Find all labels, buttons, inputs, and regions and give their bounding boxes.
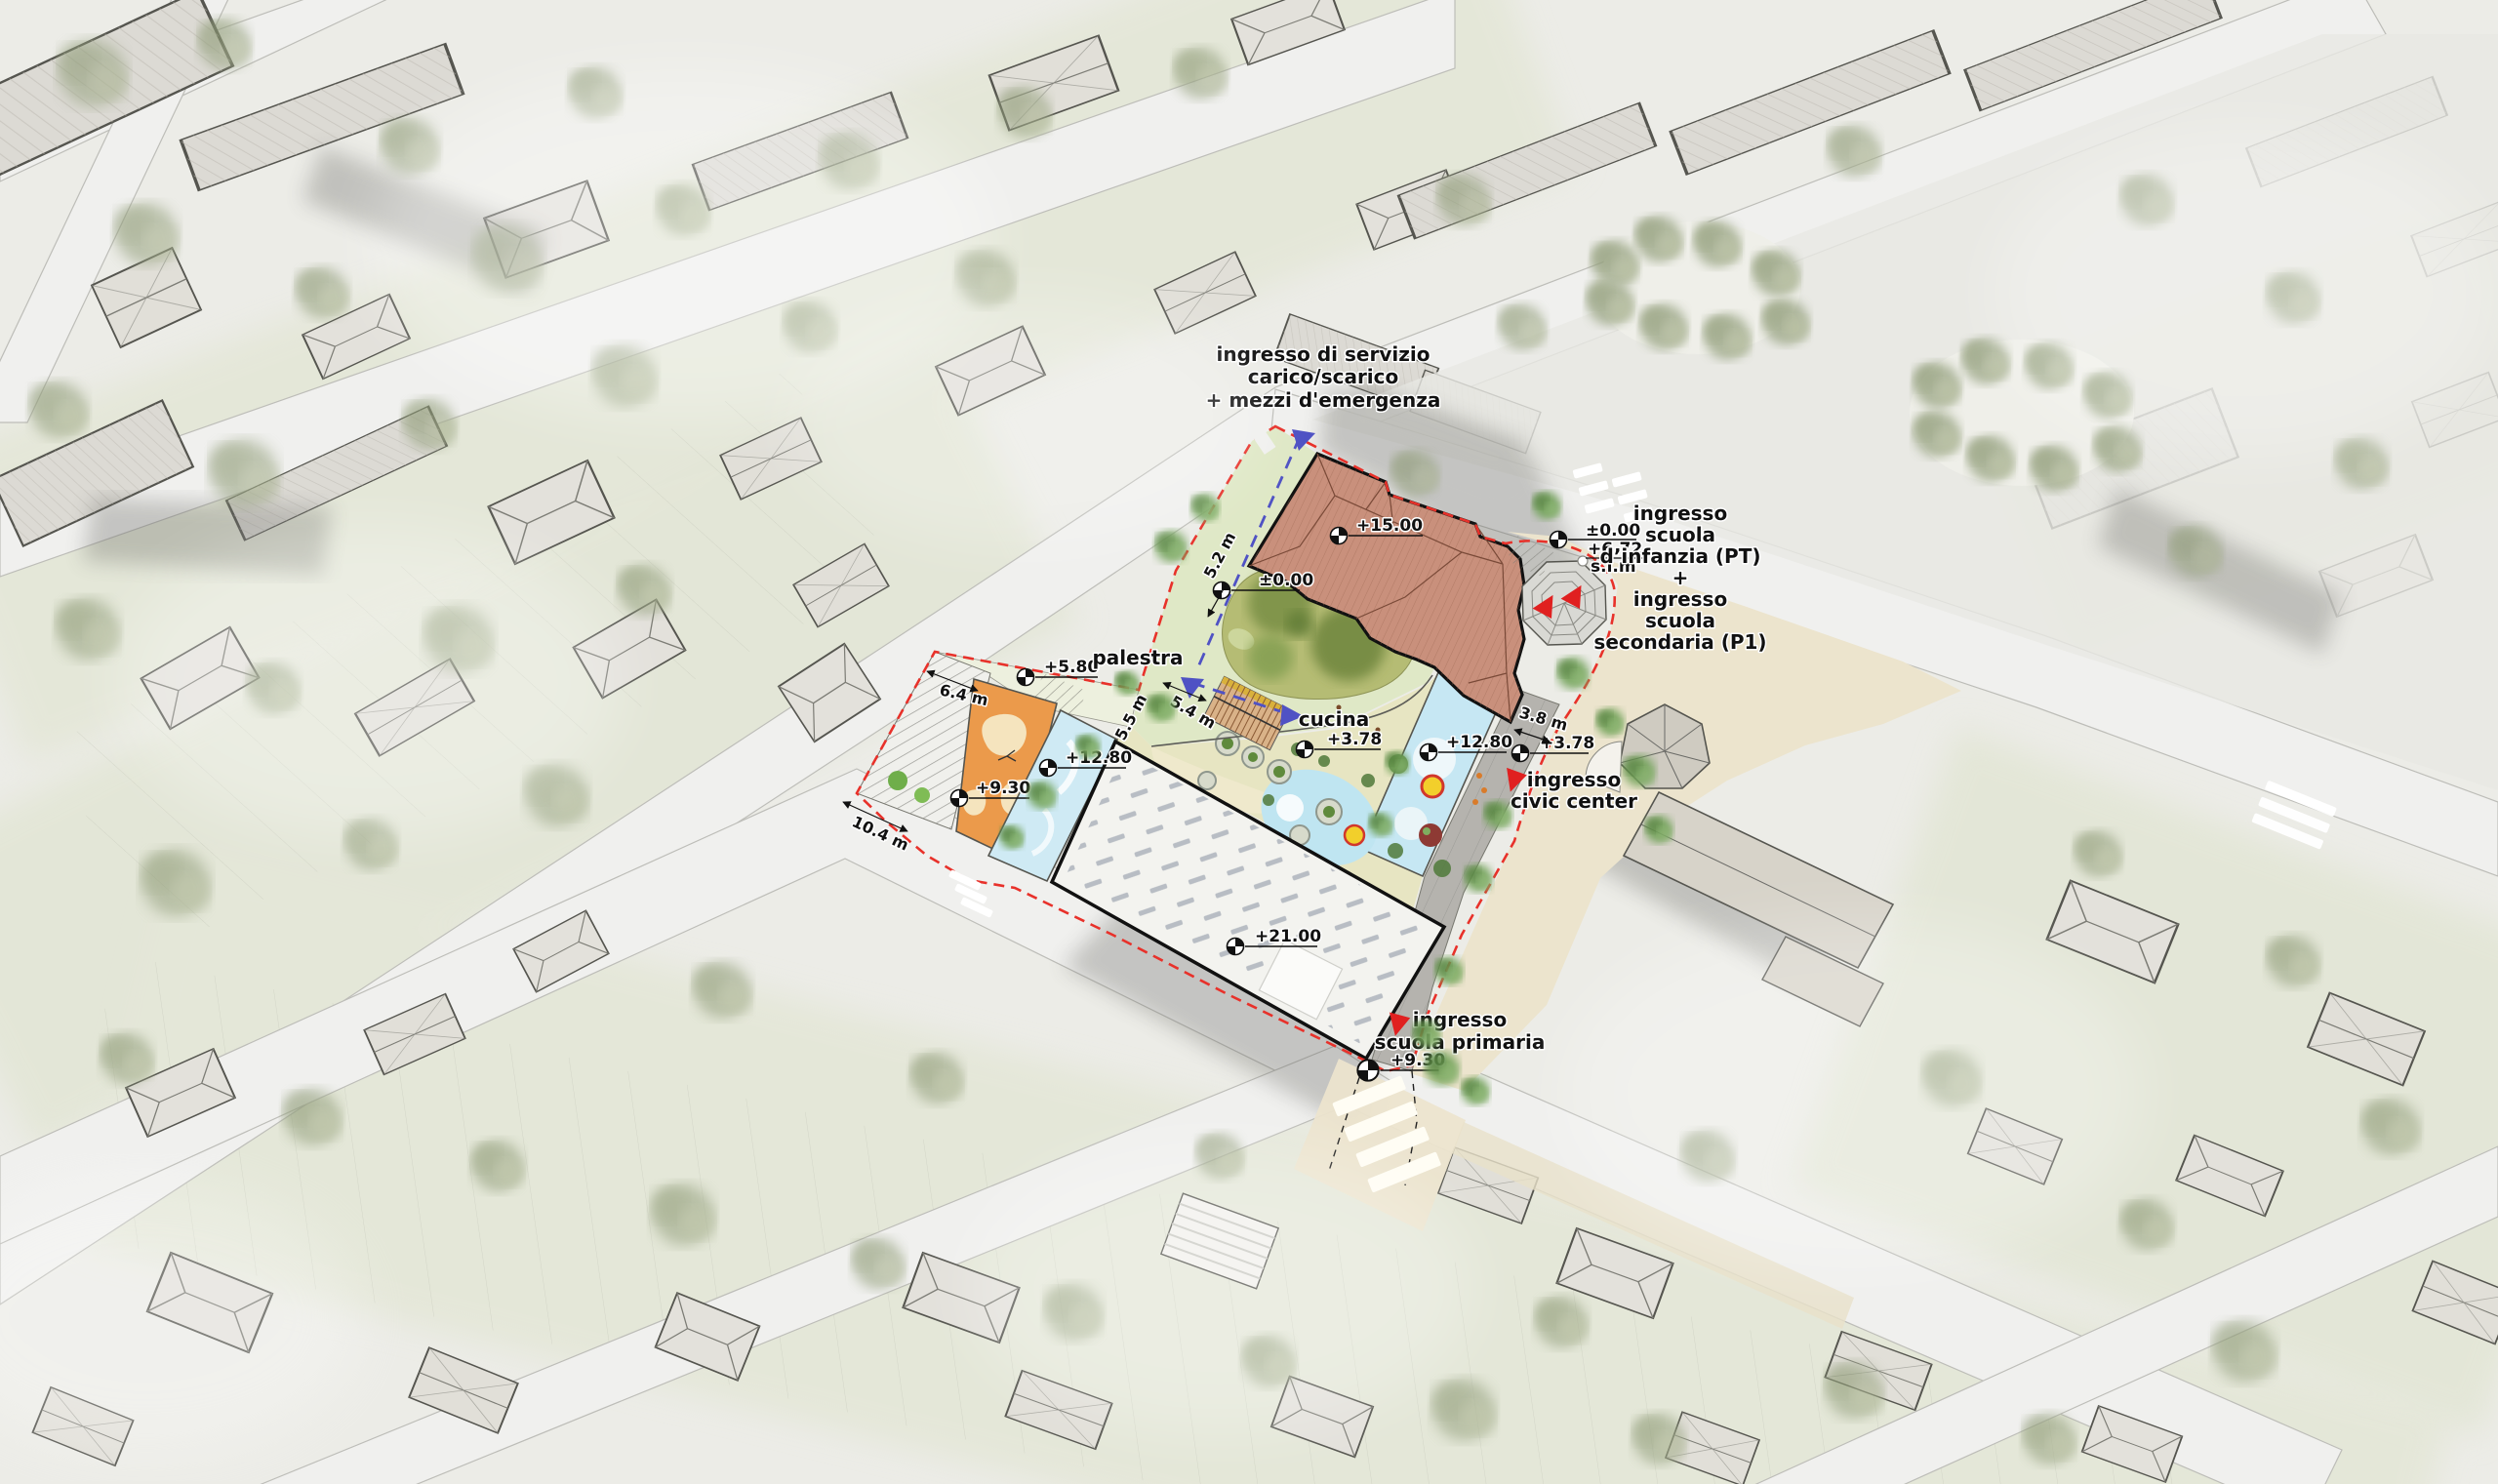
label-palestra: palestra [1092, 646, 1183, 669]
play-toy-detail [1423, 827, 1430, 835]
stair-planter [914, 787, 930, 803]
elev-civic-path: +3.78 [1540, 734, 1594, 753]
elev-roof-primary: +21.00 [1255, 927, 1321, 946]
label-service-1: ingresso di servizio [1217, 342, 1430, 366]
elev-pool-east: +12.80 [1446, 733, 1512, 752]
site-plan: ±0.00 +15.00 ±0.00 +6.72 s.l.m +3.78 +12… [0, 0, 2498, 1484]
play-toy-red [1419, 823, 1442, 847]
label-schools-2: scuola [1645, 523, 1715, 546]
pond-toy [1345, 825, 1364, 845]
pond-island [1276, 794, 1304, 822]
label-schools-4: + [1672, 566, 1689, 589]
stair-planter [888, 771, 907, 790]
label-schools-1: ingresso [1633, 501, 1727, 525]
elev-pool-west: +12.80 [1066, 748, 1132, 768]
label-primary-2: scuola primaria [1375, 1030, 1546, 1054]
elev-play-west: +9.30 [976, 779, 1030, 798]
elev-roof-main: +15.00 [1356, 516, 1423, 536]
label-schools-6: scuola [1645, 609, 1715, 632]
site-plan-canvas: ±0.00 +15.00 ±0.00 +6.72 s.l.m +3.78 +12… [0, 0, 2498, 1484]
elev-courtyard-south: +3.78 [1327, 730, 1382, 749]
label-schools-5: ingresso [1633, 587, 1727, 611]
label-schools-3: d’infanzia (PT) [1600, 544, 1761, 568]
elev-gym: +5.80 [1044, 658, 1099, 677]
label-service-2: carico/scarico [1248, 365, 1399, 388]
label-cucina: cucina [1299, 707, 1370, 731]
label-civic-1: ingresso [1527, 768, 1621, 791]
label-schools-7: secondaria (P1) [1593, 630, 1766, 654]
elev-courtyard-north: ±0.00 [1259, 571, 1313, 590]
play-toy-yellow [1422, 776, 1443, 797]
label-civic-2: civic center [1511, 789, 1637, 813]
